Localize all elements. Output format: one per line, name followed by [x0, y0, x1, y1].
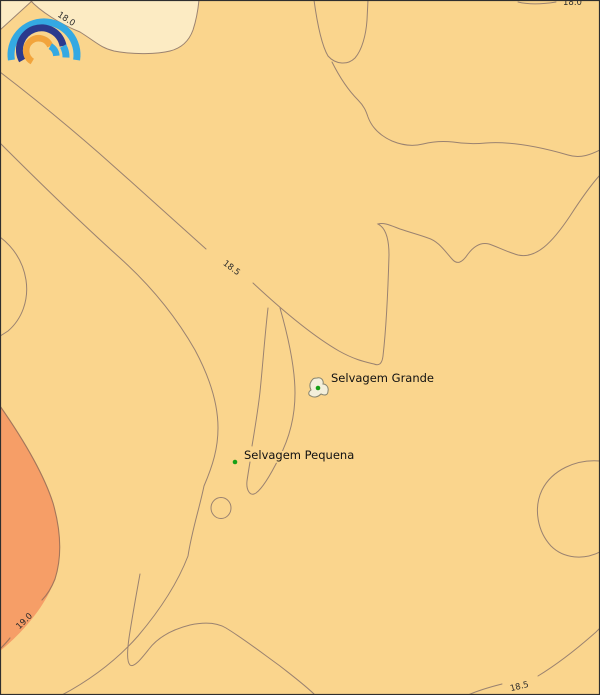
map-canvas: 18.0 18.0 18.5 18.5 19.0 Selvagem Grande…	[0, 0, 600, 695]
isotherm-map: 18.0 18.0 18.5 18.5 19.0 Selvagem Grande…	[0, 0, 600, 695]
map-background	[0, 0, 600, 695]
contour-label-18-0-topright: 18.0	[563, 0, 582, 8]
label-selvagem-pequena: Selvagem Pequena	[244, 448, 354, 462]
logo-middle-arc-tip	[63, 46, 66, 58]
grande-marker-dot	[316, 386, 321, 391]
label-selvagem-grande: Selvagem Grande	[331, 371, 434, 385]
pequena-marker-dot	[233, 460, 238, 465]
